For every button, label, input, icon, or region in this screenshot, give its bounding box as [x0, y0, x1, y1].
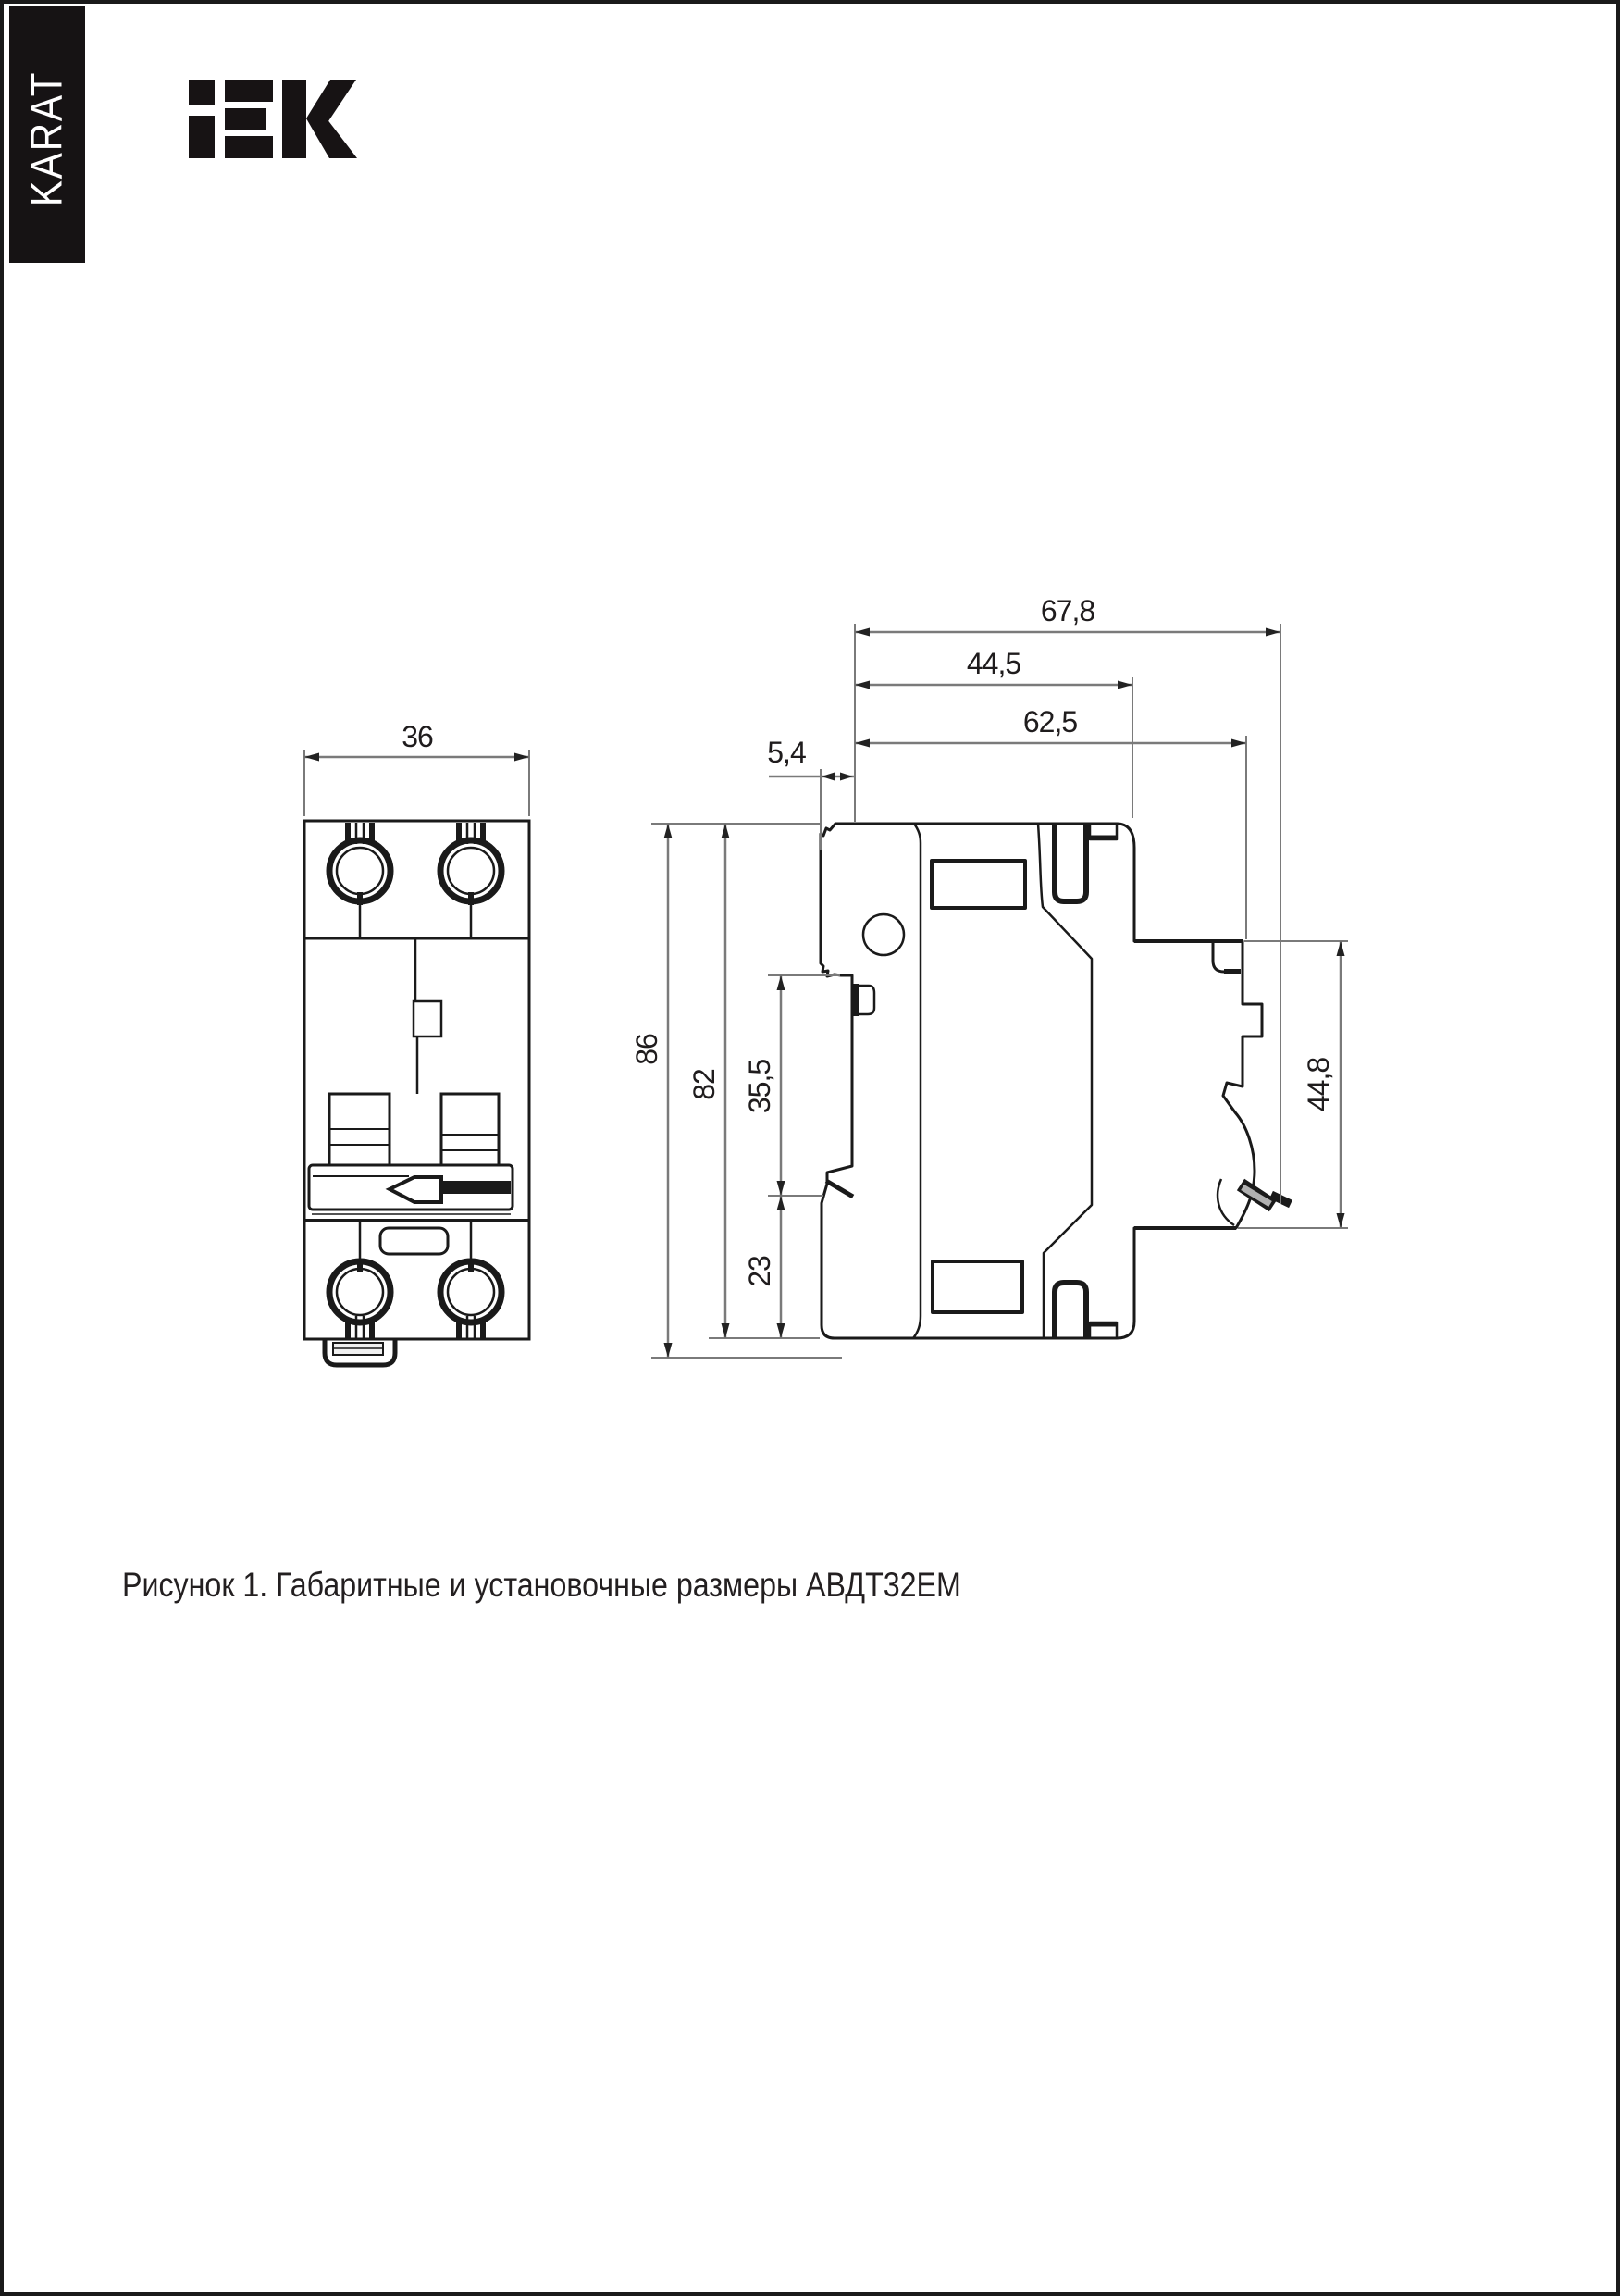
logo-e-top-bar — [225, 80, 273, 102]
logo-i-stem — [189, 116, 215, 158]
technical-drawing: 36 67,8 44,5 62,5 5,4 86 82 35,5 23 44,8 — [4, 4, 1620, 2296]
iek-logo — [189, 80, 357, 158]
logo-i-dot — [189, 80, 215, 105]
dim-upper-section: 35,5 — [743, 1060, 776, 1113]
front-bottom-tab — [325, 1339, 395, 1365]
dim-din-clamp-span: 44,8 — [1302, 1058, 1335, 1111]
document-page: KARAT Рисунок 1. Габаритные и установочн… — [0, 0, 1620, 2296]
dim-body-depth: 44,5 — [967, 647, 1020, 680]
logo-e-mid-bar — [225, 108, 266, 130]
dim-front-width: 36 — [402, 720, 433, 753]
front-lever-plate — [309, 1165, 513, 1214]
dim-overall-height: 86 — [630, 1034, 663, 1065]
side-view — [821, 824, 1291, 1338]
front-view — [304, 821, 529, 1365]
logo-e-bottom-bar — [225, 136, 273, 158]
dim-body-height: 82 — [687, 1069, 721, 1100]
dim-overall-depth: 67,8 — [1041, 594, 1094, 627]
logo-k-stem — [282, 80, 306, 158]
dim-lower-section: 23 — [743, 1256, 776, 1287]
logo-k-lower-arm — [306, 118, 357, 158]
logo-k-upper-arm — [306, 80, 356, 124]
dim-din-depth: 62,5 — [1023, 705, 1077, 738]
dim-front-lip: 5,4 — [767, 736, 806, 769]
